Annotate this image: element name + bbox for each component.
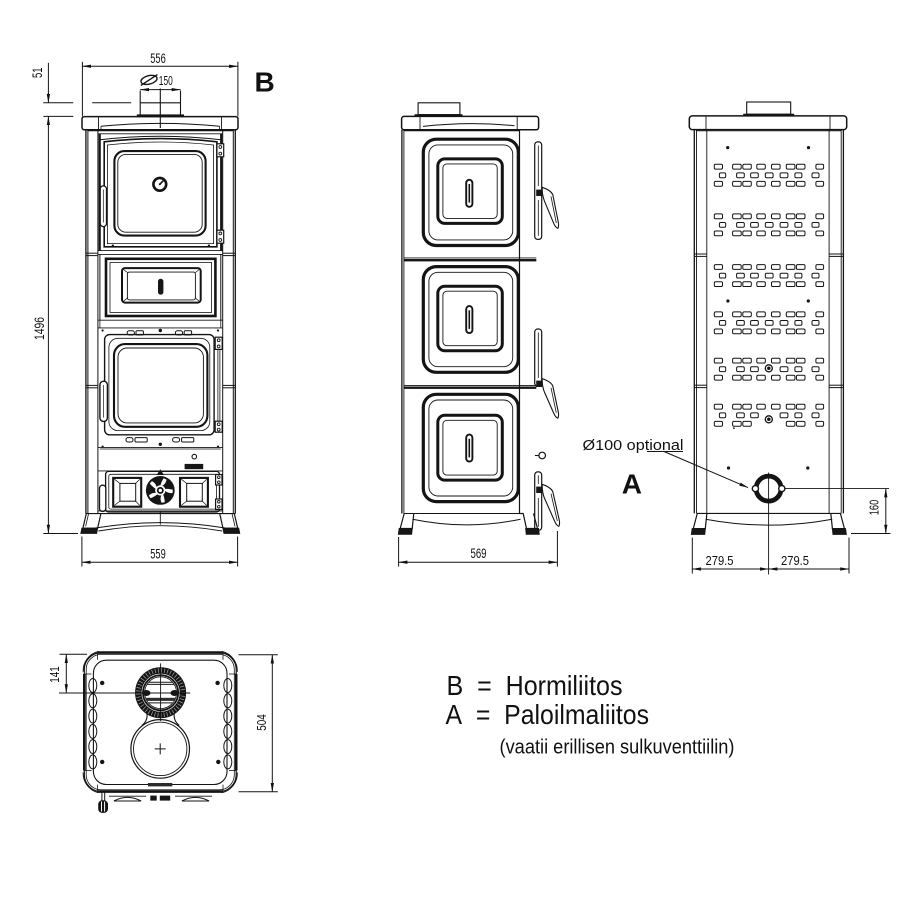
svg-text:150: 150 <box>159 73 173 88</box>
svg-text:B = Hormiliitos: B = Hormiliitos <box>447 670 623 701</box>
svg-text:556: 556 <box>150 51 166 66</box>
svg-text:559: 559 <box>150 547 166 562</box>
svg-text:1496: 1496 <box>32 317 47 340</box>
svg-text:279.5: 279.5 <box>781 554 809 568</box>
svg-text:A = Paloilmaliitos: A = Paloilmaliitos <box>446 699 650 730</box>
svg-text:A: A <box>622 469 642 500</box>
svg-text:Ø100 optional: Ø100 optional <box>583 438 684 454</box>
svg-text:(vaatii erillisen sulkuventtii: (vaatii erillisen sulkuventtiilin) <box>500 737 735 759</box>
svg-text:141: 141 <box>48 666 62 683</box>
svg-text:504: 504 <box>255 714 269 731</box>
svg-text:160: 160 <box>868 500 882 516</box>
svg-text:279.5: 279.5 <box>706 554 734 568</box>
svg-text:B: B <box>255 67 275 98</box>
svg-text:569: 569 <box>471 546 487 561</box>
svg-text:51: 51 <box>30 67 45 78</box>
